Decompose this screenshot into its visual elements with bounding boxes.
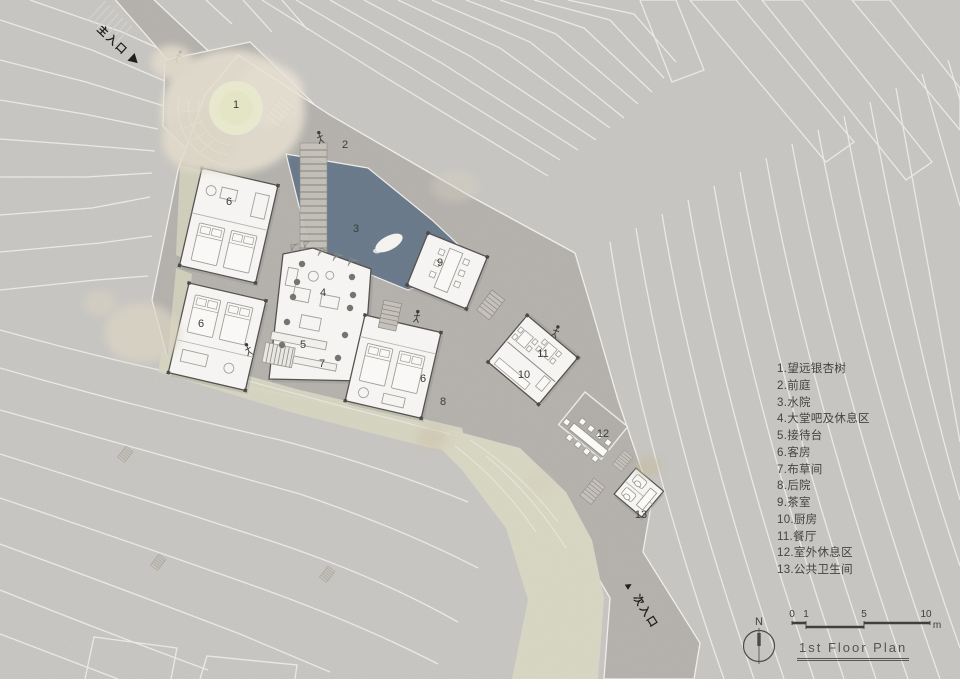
paper-texture bbox=[0, 0, 960, 679]
site-plan-drawing: 1 2 3 4 5 6 6 6 7 8 9 10 11 12 13 N 0 1 … bbox=[0, 0, 960, 679]
